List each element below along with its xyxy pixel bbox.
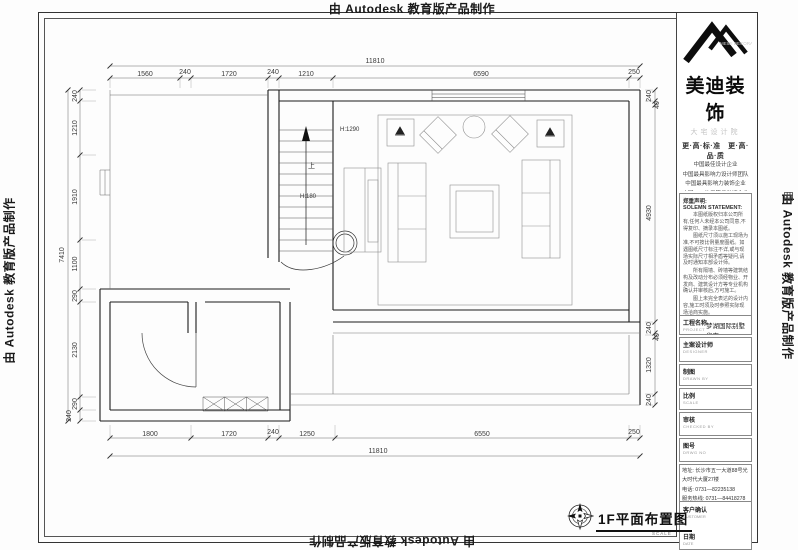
checked-row: 审核 CHECKED BY [679, 412, 752, 436]
dimension-labels: 11810 1560 240 1720 240 1210 6590 250 18… [59, 58, 661, 455]
svg-text:40: 40 [654, 101, 661, 109]
svg-text:1800: 1800 [142, 431, 158, 438]
sofa-right [522, 160, 560, 258]
designer-label: 主案设计师 [680, 338, 751, 349]
statement-title: 郑重声明: [683, 197, 748, 205]
autodesk-banner-right: 由 Autodesk 教育版产品制作 [780, 177, 797, 377]
svg-text:290: 290 [72, 398, 79, 410]
svg-text:290: 290 [72, 290, 79, 302]
lamp-icon-left [395, 127, 405, 135]
svg-text:240: 240 [179, 69, 191, 76]
statement-paragraph: 本图纸版权归本公司所有,任何人未经本公司同意,不得复印、摘录本图纸。 [683, 212, 748, 232]
svg-text:4930: 4930 [646, 205, 653, 221]
north-compass-icon [566, 500, 594, 537]
svg-text:1210: 1210 [72, 120, 79, 136]
staircase [279, 130, 333, 251]
svg-text:6550: 6550 [474, 431, 490, 438]
address-line: 地址: 长沙市五一大道88号光大时代大厦27楼 [682, 467, 749, 486]
checked-label: 审核 [680, 413, 751, 424]
svg-text:240: 240 [267, 69, 279, 76]
svg-text:1910: 1910 [72, 189, 79, 205]
drawing-title: 1F平面布置图 [596, 508, 692, 532]
accolade-line: 中国最具影响力设计师团队 [679, 171, 752, 181]
statement-paragraph: 图纸尺寸须以施工现场为准,不可按比例量度图纸。如遇图纸尺寸标注不详,或与现场实际… [683, 233, 748, 267]
accolade-line: 中国最具影响力装饰企业 [679, 180, 752, 190]
cad-sheet: { "edge": { "top": "由 Autodesk 教育版产品制作",… [0, 0, 798, 550]
rug [378, 115, 572, 305]
svg-text:240: 240 [72, 90, 79, 102]
svg-text:240: 240 [646, 322, 653, 334]
brand-area: MEIDI DECORATION 美迪装饰 大宅设计院 更·高·标·准 更·高·… [679, 15, 752, 191]
armchair-left [420, 117, 457, 154]
checked-sublabel: CHECKED BY [680, 424, 751, 429]
project-name-row: 工程名称 PROJECT 梦湖国际别墅华宅 [679, 315, 752, 335]
up-label: 上 [308, 161, 315, 170]
svg-text:250: 250 [628, 69, 640, 76]
svg-text:2130: 2130 [72, 342, 79, 358]
scale-row: 比例 SCALE [679, 388, 752, 410]
svg-text:240: 240 [646, 394, 653, 406]
height-label-2: H:180 [300, 194, 317, 200]
left-boundary [100, 90, 268, 289]
brand-name: 美迪装饰 [679, 71, 752, 125]
floor-plan-drawing: H:1290 H:180 上 11810 1560 240 1720 240 1… [35, 5, 675, 545]
brand-roof-logo-icon: MEIDI DECORATION [680, 15, 752, 65]
svg-text:1100: 1100 [72, 256, 79, 271]
drawing-number-sublabel: DRWG NO [680, 450, 751, 455]
lamp-icon-right [545, 128, 555, 136]
statement-title-en: SOLEMN STATEMENT: [683, 205, 748, 211]
hatched-window [203, 397, 268, 411]
stair-up-arrow [302, 126, 310, 141]
svg-text:11810: 11810 [366, 58, 385, 65]
drawing-number-label: 图号 [680, 439, 751, 450]
svg-text:240: 240 [66, 410, 73, 422]
svg-text:1250: 1250 [299, 431, 315, 438]
accolade-line: 中国最佳设计企业 [679, 161, 752, 171]
project-value: 梦湖国际别墅华宅 [706, 320, 751, 335]
svg-text:1720: 1720 [221, 431, 237, 438]
drawn-row: 制图 DRAWN BY [679, 364, 752, 386]
window-top-wall [432, 90, 525, 101]
sofa-left [388, 163, 426, 262]
svg-text:6590: 6590 [473, 71, 489, 78]
designer-row: 主案设计师 DESIGNER [679, 337, 752, 362]
svg-text:250: 250 [628, 429, 640, 436]
svg-text:11810: 11810 [369, 448, 388, 455]
svg-text:1560: 1560 [137, 71, 153, 78]
round-table [463, 116, 485, 138]
drawn-sublabel: DRAWN BY [680, 376, 751, 381]
svg-text:MEIDI DECORATION: MEIDI DECORATION [720, 41, 752, 46]
phone-line: 电话: 0731—82235138 [682, 486, 749, 495]
door-swing [142, 333, 196, 387]
statement-paragraph: 图上未完全表达的设计内容,施工时须及时参照实际现场洽商实施。 [683, 296, 748, 316]
tv-cabinet [344, 168, 381, 252]
coffee-table [450, 185, 499, 238]
statement-box: 郑重声明: SOLEMN STATEMENT: 本图纸版权归本公司所有,任何人未… [679, 193, 752, 319]
accolade-line: 中国AAA信用等级装饰企业 [679, 190, 752, 191]
brand-institute: 大宅设计院 [679, 127, 752, 137]
scale-label: 比例 [680, 389, 751, 400]
date-sublabel: DATE [683, 541, 695, 546]
walls [100, 90, 640, 421]
terrace-lines [290, 333, 640, 405]
brand-slogan: 更·高·标·准 更·高·品·质 [679, 141, 752, 161]
statement-paragraph: 所有隔墙、砖墙等建筑结构及改动分布必须经物业、开发商、建筑设计方等专业机构确认并… [683, 268, 748, 295]
furniture [344, 115, 572, 305]
drawing-number-row: 图号 DRWG NO [679, 438, 752, 462]
registration-mark-icon [784, 188, 793, 206]
svg-text:7410: 7410 [59, 247, 66, 263]
drawn-label: 制图 [680, 365, 751, 376]
date-label: 日期 [683, 532, 695, 541]
svg-text:240: 240 [646, 90, 653, 102]
autodesk-banner-left: 由 Autodesk 教育版产品制作 [1, 181, 18, 381]
scale-sublabel: SCALE [680, 400, 751, 405]
address-box: 地址: 长沙市五一大道88号光大时代大厦27楼 电话: 0731—8223513… [679, 464, 752, 503]
designer-sublabel: DESIGNER [680, 349, 751, 354]
svg-text:1320: 1320 [646, 357, 653, 373]
dimension-lines [66, 64, 658, 459]
svg-text:1210: 1210 [298, 71, 314, 78]
height-label-1: H:1290 [340, 127, 360, 133]
svg-text:40: 40 [654, 333, 661, 341]
svg-text:1720: 1720 [221, 71, 237, 78]
title-block: MEIDI DECORATION 美迪装饰 大宅设计院 更·高·标·准 更·高·… [676, 13, 755, 537]
stair-spiral [281, 231, 357, 270]
svg-text:240: 240 [267, 429, 279, 436]
drawing-scale-caption: SCALE [652, 531, 672, 536]
armchair-right [492, 116, 529, 153]
